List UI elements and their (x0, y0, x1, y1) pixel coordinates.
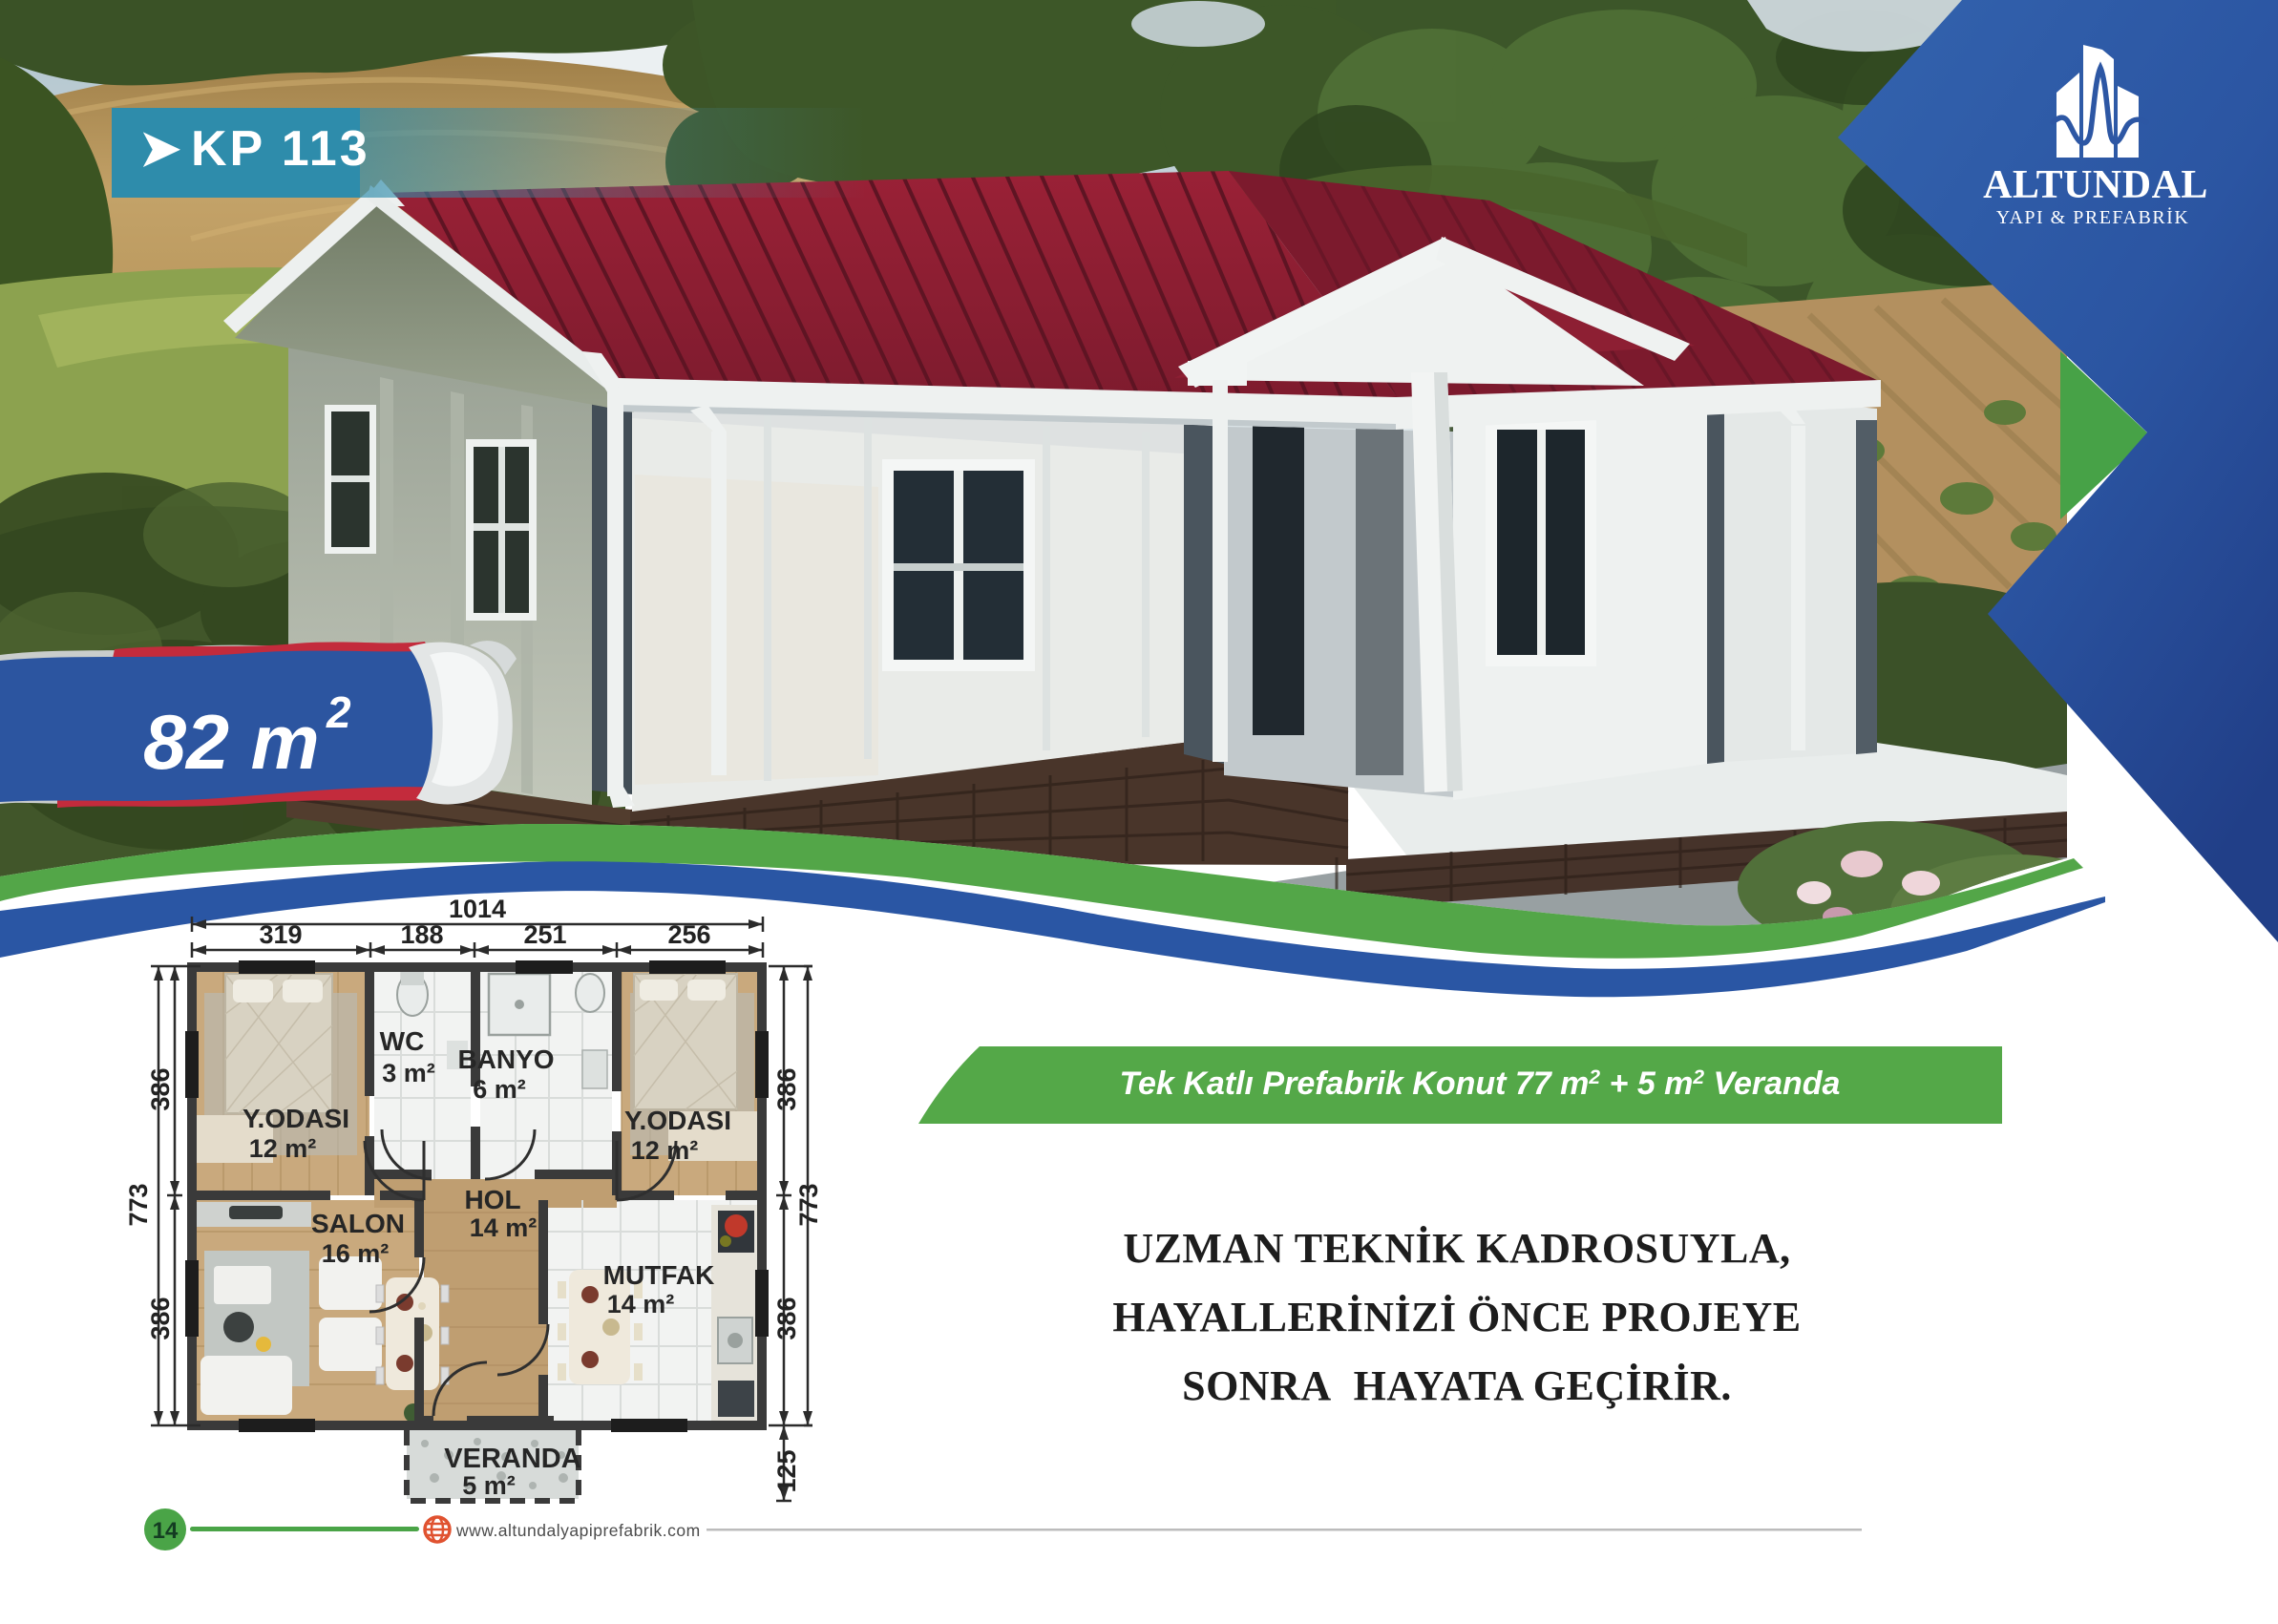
svg-text:14 m²: 14 m² (470, 1213, 538, 1242)
svg-text:319: 319 (259, 920, 302, 949)
svg-text:773: 773 (794, 1183, 823, 1226)
svg-text:12 m²: 12 m² (249, 1134, 317, 1163)
svg-text:16 m²: 16 m² (322, 1239, 390, 1268)
svg-text:82 m: 82 m (143, 700, 320, 786)
svg-text:BANYO: BANYO (457, 1044, 554, 1074)
svg-text:386: 386 (146, 1297, 175, 1339)
svg-text:188: 188 (400, 920, 443, 949)
svg-text:14 m²: 14 m² (607, 1290, 675, 1318)
svg-text:386: 386 (772, 1067, 801, 1110)
svg-text:WC: WC (380, 1026, 425, 1056)
svg-text:Y.ODASI: Y.ODASI (624, 1106, 731, 1135)
svg-text:ALTUNDAL: ALTUNDAL (1983, 163, 2208, 207)
svg-text:14: 14 (153, 1518, 179, 1544)
svg-text:5 m²: 5 m² (462, 1471, 516, 1500)
svg-text:MUTFAK: MUTFAK (603, 1260, 715, 1290)
svg-text:251: 251 (523, 920, 566, 949)
svg-text:6 m²: 6 m² (473, 1075, 526, 1104)
svg-text:YAPI & PREFABRİK: YAPI & PREFABRİK (1996, 206, 2190, 228)
svg-text:773: 773 (124, 1183, 153, 1226)
svg-text:386: 386 (772, 1297, 801, 1339)
svg-text:HOL: HOL (464, 1185, 520, 1214)
svg-text:2: 2 (326, 687, 351, 737)
svg-text:125: 125 (772, 1449, 801, 1492)
svg-text:3 m²: 3 m² (382, 1059, 435, 1087)
svg-text:386: 386 (146, 1067, 175, 1110)
svg-text:VERANDA: VERANDA (444, 1444, 580, 1474)
svg-text:256: 256 (667, 920, 710, 949)
svg-text:SALON: SALON (311, 1209, 405, 1238)
svg-text:12 m²: 12 m² (631, 1136, 699, 1165)
svg-text:www.altundalyapiprefabrik.com: www.altundalyapiprefabrik.com (455, 1521, 701, 1540)
svg-text:Y.ODASI: Y.ODASI (243, 1104, 349, 1133)
svg-text:1014: 1014 (449, 895, 506, 923)
